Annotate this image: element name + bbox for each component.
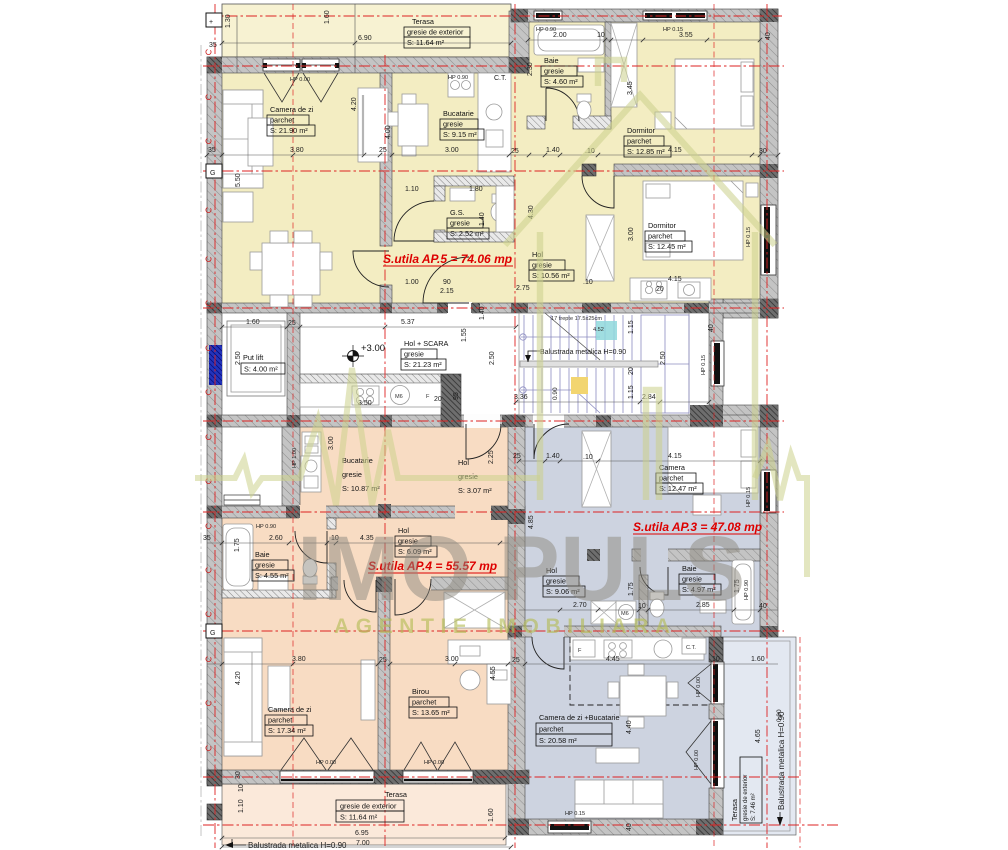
svg-text:1.40: 1.40 <box>479 306 486 320</box>
svg-text:F: F <box>426 394 430 400</box>
svg-text:1.15: 1.15 <box>628 385 635 399</box>
svg-text:2.60: 2.60 <box>269 535 283 542</box>
svg-text:S: 17.34 m²: S: 17.34 m² <box>268 726 306 735</box>
svg-text:4.15: 4.15 <box>668 147 682 154</box>
svg-text:2.50: 2.50 <box>660 351 667 365</box>
svg-text:gresie: gresie <box>404 350 424 359</box>
svg-text:gresie: gresie <box>342 470 362 479</box>
svg-text:5.50: 5.50 <box>235 173 242 187</box>
svg-text:parchet: parchet <box>270 116 294 125</box>
svg-text:Baie: Baie <box>255 550 270 559</box>
svg-text:6.95: 6.95 <box>355 830 369 837</box>
svg-text:Baie: Baie <box>544 56 559 65</box>
svg-text:HP 0.15: HP 0.15 <box>746 487 752 507</box>
svg-text:4.55: 4.55 <box>490 666 497 680</box>
svg-text:HP 0.90: HP 0.90 <box>256 524 276 530</box>
svg-text:+: + <box>209 19 213 26</box>
svg-text:7.00: 7.00 <box>356 840 370 847</box>
svg-text:Camera de zi +Bucatarie: Camera de zi +Bucatarie <box>539 713 620 722</box>
svg-text:S: 4.00 m²: S: 4.00 m² <box>244 365 278 374</box>
svg-text:gresie de exterior: gresie de exterior <box>407 28 464 37</box>
svg-text:gresie de exterior: gresie de exterior <box>743 775 749 821</box>
svg-text:1.60: 1.60 <box>324 10 331 24</box>
svg-text:4.20: 4.20 <box>235 671 242 685</box>
svg-text:gresie: gresie <box>443 120 463 129</box>
svg-text:S: 21.90 m²: S: 21.90 m² <box>270 126 308 135</box>
svg-text:HP 0.00: HP 0.00 <box>694 750 700 770</box>
svg-text:40: 40 <box>765 32 772 40</box>
svg-text:S: 7.46 m²: S: 7.46 m² <box>751 793 757 821</box>
svg-text:1.60: 1.60 <box>488 808 495 822</box>
svg-text:4.15: 4.15 <box>668 276 682 283</box>
svg-text:G: G <box>210 630 215 637</box>
svg-text:parchet: parchet <box>412 698 436 707</box>
svg-text:S: 9.15 m²: S: 9.15 m² <box>443 130 477 139</box>
svg-text:M6: M6 <box>395 394 403 400</box>
svg-text:IMO PULS: IMO PULS <box>297 518 746 620</box>
svg-text:Dormitor: Dormitor <box>648 221 677 230</box>
svg-text:gresie: gresie <box>450 219 470 228</box>
svg-text:1.00: 1.00 <box>405 279 419 286</box>
svg-text:G: G <box>210 170 215 177</box>
svg-text:Camera: Camera <box>659 463 686 472</box>
svg-text:20: 20 <box>656 286 664 293</box>
svg-text:4.15: 4.15 <box>668 453 682 460</box>
svg-text:parchet: parchet <box>539 725 563 734</box>
svg-text:HP 0.00: HP 0.00 <box>290 77 310 83</box>
svg-text:S: 4.60 m²: S: 4.60 m² <box>544 77 578 86</box>
svg-text:1.60: 1.60 <box>246 319 260 326</box>
svg-text:Bucatarie: Bucatarie <box>443 109 474 118</box>
svg-text:S: 2.52 m²: S: 2.52 m² <box>450 229 484 238</box>
svg-text:35: 35 <box>209 42 217 49</box>
svg-text:3.80: 3.80 <box>290 147 304 154</box>
svg-text:S: 12.45 m²: S: 12.45 m² <box>648 242 686 251</box>
svg-text:30: 30 <box>759 148 767 155</box>
svg-text:40: 40 <box>708 324 715 332</box>
svg-text:HP 0.00: HP 0.00 <box>316 760 336 766</box>
svg-text:F: F <box>578 648 582 654</box>
svg-text:25: 25 <box>512 657 520 664</box>
svg-text:2.15: 2.15 <box>440 288 454 295</box>
svg-text:HP 0.00: HP 0.00 <box>696 677 702 697</box>
svg-text:3.00: 3.00 <box>628 227 635 241</box>
svg-text:4.52: 4.52 <box>593 327 604 333</box>
svg-text:Balustrada metalica H=0.90: Balustrada metalica H=0.90 <box>540 349 626 356</box>
svg-text:1.40: 1.40 <box>546 147 560 154</box>
svg-text:Camera de zi: Camera de zi <box>268 705 312 714</box>
svg-text:5.37: 5.37 <box>401 319 415 326</box>
svg-text:S: 12.47 m²: S: 12.47 m² <box>659 484 697 493</box>
svg-text:1.75: 1.75 <box>234 538 241 552</box>
svg-text:20: 20 <box>628 367 635 375</box>
svg-text:Balustrada metalica H=0.90: Balustrada metalica H=0.90 <box>777 711 786 810</box>
svg-text:2.75: 2.75 <box>516 285 530 292</box>
svg-text:S: 4.55 m²: S: 4.55 m² <box>255 571 289 580</box>
svg-text:3.36: 3.36 <box>514 394 528 401</box>
svg-text:25: 25 <box>511 148 519 155</box>
svg-text:S: 20.58 m²: S: 20.58 m² <box>539 736 577 745</box>
svg-text:gresie: gresie <box>255 561 275 570</box>
svg-text:30: 30 <box>235 771 242 779</box>
svg-text:HP 0.90: HP 0.90 <box>536 27 556 33</box>
svg-text:3.00: 3.00 <box>328 436 335 450</box>
svg-text:10: 10 <box>712 656 720 663</box>
svg-text:35: 35 <box>203 535 211 542</box>
svg-text:gresie: gresie <box>544 67 564 76</box>
svg-text:AGENTIE IMOBILIARA: AGENTIE IMOBILIARA <box>334 615 677 638</box>
svg-text:4.00: 4.00 <box>385 125 392 139</box>
svg-text:S: 21.23 m²: S: 21.23 m² <box>404 360 442 369</box>
svg-text:25: 25 <box>379 147 387 154</box>
svg-text:40: 40 <box>626 823 633 831</box>
svg-text:Balustrada metalica H=0.90: Balustrada metalica H=0.90 <box>248 841 347 850</box>
svg-text:G.S.: G.S. <box>450 208 465 217</box>
svg-text:3.80: 3.80 <box>292 656 306 663</box>
svg-text:parchet: parchet <box>648 232 672 241</box>
svg-text:.10: .10 <box>583 454 593 461</box>
svg-text:25: 25 <box>288 320 296 327</box>
svg-text:C.T.: C.T. <box>686 645 696 651</box>
svg-text:Birou: Birou <box>412 687 429 696</box>
svg-text:S: 13.65 m²: S: 13.65 m² <box>412 708 450 717</box>
svg-text:90: 90 <box>443 279 451 286</box>
svg-text:40: 40 <box>759 603 767 610</box>
svg-text:HP 0.00: HP 0.00 <box>424 760 444 766</box>
svg-text:Hol: Hol <box>458 458 469 467</box>
svg-text:HP 0.15: HP 0.15 <box>663 27 683 33</box>
svg-text:2.30: 2.30 <box>527 62 534 76</box>
svg-text:4.40: 4.40 <box>626 720 633 734</box>
svg-text:3.45: 3.45 <box>627 81 634 95</box>
svg-text:1.80: 1.80 <box>469 186 483 193</box>
svg-text:0.90: 0.90 <box>552 387 559 400</box>
svg-text:parchet: parchet <box>268 716 292 725</box>
svg-text:Terasa: Terasa <box>412 17 435 26</box>
svg-text:S: 12.85 m²: S: 12.85 m² <box>627 147 665 156</box>
svg-text:S: 3.07 m²: S: 3.07 m² <box>458 486 492 495</box>
svg-text:1.40: 1.40 <box>546 453 560 460</box>
svg-text:4.20: 4.20 <box>351 97 358 111</box>
svg-text:1.40: 1.40 <box>479 212 486 226</box>
svg-text:25: 25 <box>379 657 387 664</box>
svg-text:2.25: 2.25 <box>488 450 495 464</box>
svg-text:20: 20 <box>434 396 442 403</box>
svg-text:1.55: 1.55 <box>461 328 468 342</box>
svg-text:1.10: 1.10 <box>238 799 245 813</box>
svg-text:C.T.: C.T. <box>494 75 507 82</box>
svg-text:parchet: parchet <box>627 137 651 146</box>
svg-text:Put lift: Put lift <box>243 353 263 362</box>
svg-text:2.00: 2.00 <box>553 32 567 39</box>
svg-text:2.50: 2.50 <box>489 351 496 365</box>
svg-text:.10: .10 <box>583 279 593 286</box>
svg-text:1.15: 1.15 <box>628 320 635 334</box>
svg-text:HP 0.90: HP 0.90 <box>448 75 468 81</box>
svg-text:10: 10 <box>238 784 245 792</box>
svg-text:3.55: 3.55 <box>679 32 693 39</box>
svg-text:HP 1.00: HP 1.00 <box>292 448 298 468</box>
svg-text:Terasa: Terasa <box>385 790 408 799</box>
svg-text:4.45: 4.45 <box>606 656 620 663</box>
svg-text:HP 0.15: HP 0.15 <box>746 227 752 247</box>
svg-text:3.00: 3.00 <box>445 147 459 154</box>
svg-text:S.utila AP.5 = 74.06 mp: S.utila AP.5 = 74.06 mp <box>383 252 512 266</box>
svg-text:parchet: parchet <box>659 474 683 483</box>
svg-text:Hol + SCARA: Hol + SCARA <box>404 339 449 348</box>
svg-text:1.60: 1.60 <box>751 656 765 663</box>
svg-text:17 trepte 17.5x25cm: 17 trepte 17.5x25cm <box>551 316 602 322</box>
svg-text:+3.00: +3.00 <box>361 343 385 354</box>
svg-text:6.90: 6.90 <box>358 35 372 42</box>
svg-text:HP 0.15: HP 0.15 <box>701 355 707 375</box>
svg-text:25: 25 <box>513 453 521 460</box>
svg-text:S: 11.64 m²: S: 11.64 m² <box>340 813 378 822</box>
svg-text:Camera de zi: Camera de zi <box>270 105 314 114</box>
svg-text:HP 0.15: HP 0.15 <box>565 811 585 817</box>
svg-text:Terasa: Terasa <box>730 798 739 821</box>
svg-text:4.65: 4.65 <box>755 729 762 743</box>
svg-text:gresie de exterior: gresie de exterior <box>340 802 397 811</box>
svg-text:95: 95 <box>453 392 460 400</box>
svg-text:1.10: 1.10 <box>405 186 419 193</box>
svg-text:S: 11.64 m²: S: 11.64 m² <box>407 38 445 47</box>
svg-text:10: 10 <box>597 32 605 39</box>
svg-text:Dormitor: Dormitor <box>627 126 656 135</box>
svg-text:1.30: 1.30 <box>225 14 232 28</box>
